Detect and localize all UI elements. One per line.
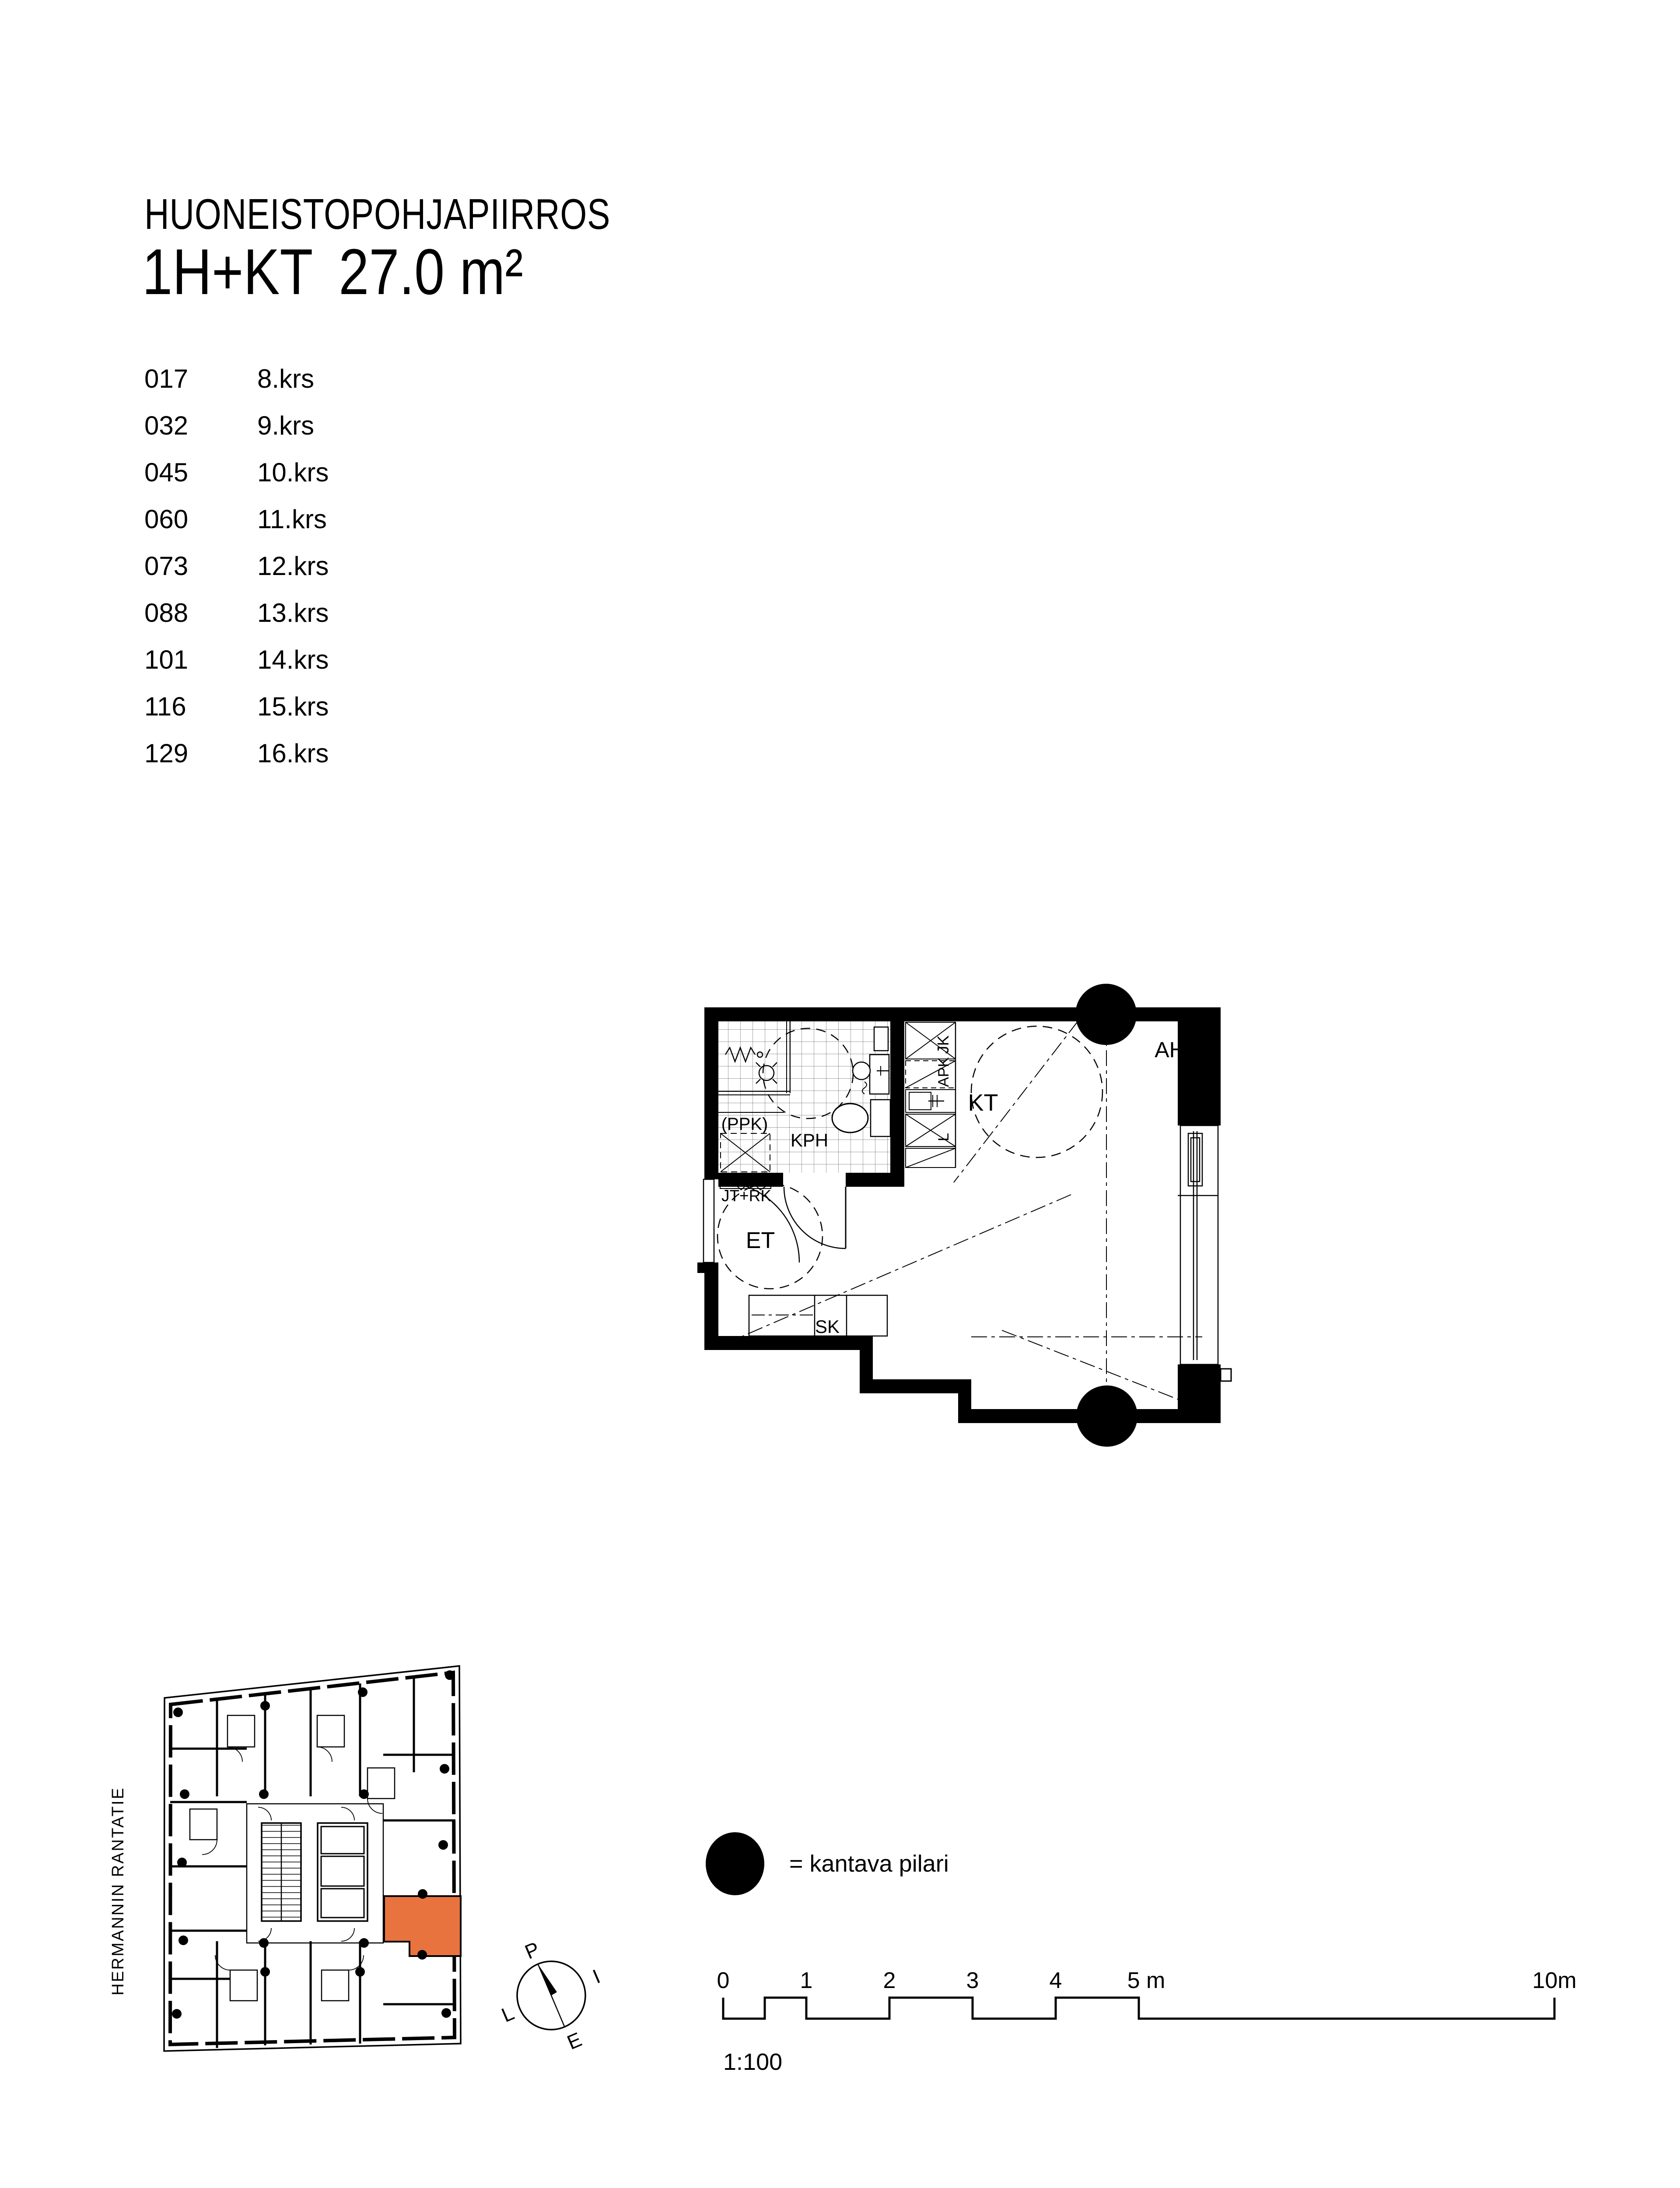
apartment-number: 101 [144, 645, 257, 675]
apartment-list-row: 101 14.krs [144, 636, 329, 683]
compass: P I E L [477, 1919, 626, 2085]
apartment-floor: 13.krs [257, 598, 329, 628]
apartment-floor-plan: KPH (PPK) JT+RK ET SK KT AH JK APK L [691, 980, 1282, 1483]
document-type-title: HUONEISTOPOHJAPIIRROS [144, 193, 610, 235]
apartment-list-row: 060 11.krs [144, 496, 329, 543]
room-label-living: AH [1155, 1038, 1185, 1062]
apartment-type: 1H+KT [142, 236, 313, 308]
scale-tick-label: 10m [1532, 1968, 1576, 1993]
pillar-icon [703, 1831, 766, 1897]
entrance-door-leaf [703, 1179, 714, 1262]
scale-ratio: 1:100 [723, 2049, 782, 2075]
room-label-kitchen: KT [968, 1090, 998, 1116]
scale-tick-label: 1 [800, 1968, 813, 1993]
room-label-bathroom: KPH [791, 1130, 828, 1150]
apartment-number: 060 [144, 504, 257, 534]
apartment-list-row: 073 12.krs [144, 543, 329, 589]
legend-label: = kantava pilari [789, 1850, 949, 1877]
compass-letter-west: L [498, 2001, 518, 2027]
apartment-floor: 9.krs [257, 410, 314, 441]
appliance-label-stove: L [935, 1133, 952, 1141]
room-label-jtrk: JT+RK [721, 1187, 771, 1205]
bathroom-door-arc [784, 1187, 846, 1248]
apartment-floor: 8.krs [257, 364, 314, 394]
scale-tick-label: 3 [966, 1968, 979, 1993]
apartment-list: 017 8.krs 032 9.krs 045 10.krs 060 11.kr… [144, 355, 329, 777]
appliance-label-dishwasher: APK [935, 1057, 952, 1087]
scale-tick-label: 5 m [1127, 1968, 1165, 1993]
apartment-list-row: 116 15.krs [144, 683, 329, 730]
compass-letter-north: P [521, 1937, 543, 1964]
legend: = kantava pilari [703, 1831, 949, 1897]
room-label-entry: ET [746, 1228, 775, 1253]
elevator-core [318, 1823, 367, 1921]
apartment-floor: 14.krs [257, 645, 329, 675]
compass-letter-east: I [589, 1965, 603, 1988]
apartment-number: 073 [144, 551, 257, 581]
apartment-list-row: 017 8.krs [144, 355, 329, 402]
apartment-floor: 12.krs [257, 551, 329, 581]
compass-letter-south: E [563, 2028, 585, 2054]
apartment-floor: 16.krs [257, 738, 329, 768]
scale-bar: 0 1 2 3 4 5 m 10m 1:100 [700, 1967, 1597, 2081]
apartment-number: 032 [144, 410, 257, 441]
apartment-number: 017 [144, 364, 257, 394]
street-name: HERMANNIN RANTATIE [109, 1787, 127, 1995]
appliance-label-fridge: JK [934, 1035, 952, 1054]
apartment-list-row: 129 16.krs [144, 730, 329, 777]
apartment-list-row: 032 9.krs [144, 402, 329, 449]
apartment-floor: 15.krs [257, 691, 329, 722]
apartment-number: 116 [144, 691, 257, 722]
washbasin-icon [853, 1062, 870, 1080]
apartment-list-row: 045 10.krs [144, 449, 329, 496]
scale-tick-label: 0 [717, 1968, 730, 1993]
scale-bar-ruler [723, 1998, 1554, 2019]
site-plan: HERMANNIN RANTATIE [96, 1663, 490, 2079]
window [1178, 1126, 1231, 1381]
compass-needle-icon [538, 1961, 557, 1995]
stair-core [262, 1823, 301, 1921]
bathroom-cabinet [874, 1027, 888, 1051]
room-label-closet: SK [815, 1316, 840, 1337]
room-label-ppk: (PPK) [721, 1115, 768, 1134]
apartment-number: 088 [144, 598, 257, 628]
apartment-list-row: 088 13.krs [144, 589, 329, 636]
building-outline [164, 1666, 461, 2051]
apartment-number: 129 [144, 738, 257, 768]
toilet-tank [871, 1100, 890, 1136]
apartment-floor: 11.krs [257, 504, 327, 534]
scale-tick-label: 4 [1050, 1968, 1062, 1993]
apartment-floor: 10.krs [257, 457, 329, 487]
apartment-area: 27.0 m² [339, 236, 523, 308]
apartment-number: 045 [144, 457, 257, 487]
floor-plan-document-page: HUONEISTOPOHJAPIIRROS 1H+KT27.0 m² 017 8… [0, 0, 1680, 2188]
scale-tick-label: 2 [883, 1968, 896, 1993]
apartment-type-title: 1H+KT27.0 m² [142, 240, 523, 305]
